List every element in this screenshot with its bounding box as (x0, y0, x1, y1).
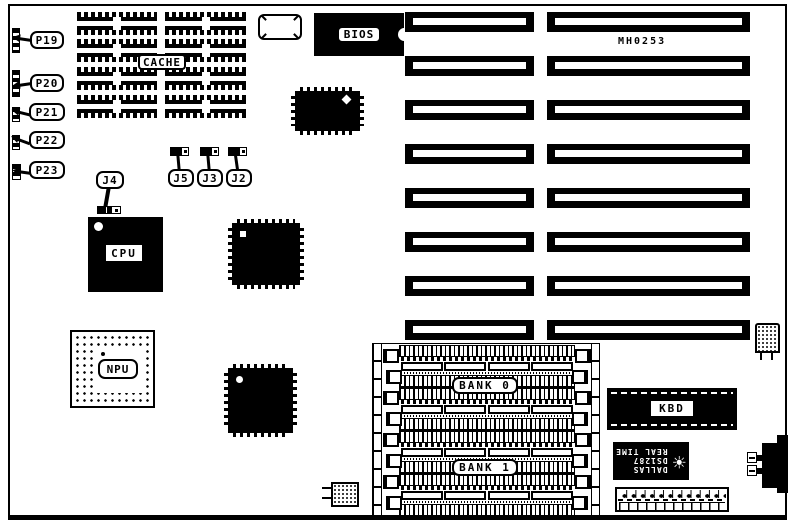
cpu-chip: CPU (88, 217, 163, 292)
header-dashes (618, 499, 726, 501)
motherboard-diagram: MH0253 P19 P20 P21 P22 P23 CACHE BIOS (0, 0, 791, 527)
rtc-print: ☀ DALLAS DS1287 REAL TIME (613, 442, 689, 480)
power-header-strip (615, 487, 729, 512)
cache-label: CACHE (138, 54, 186, 70)
connector-label-p19: P19 (30, 31, 64, 49)
connector-label-p20: P20 (30, 74, 64, 92)
jumper-j5-icon (170, 147, 189, 156)
cache-chip (165, 95, 246, 118)
pin1-mark-icon (236, 376, 243, 383)
isa-slot-segment (405, 144, 534, 164)
connector-label-p21: P21 (29, 103, 65, 121)
rtc-chip: ☀ DALLAS DS1287 REAL TIME (613, 442, 689, 480)
bios-label: BIOS (338, 27, 380, 42)
bank1-label: BANK 1 (452, 459, 518, 476)
model-code-label: MH0253 (618, 36, 666, 47)
crystal-leg (322, 487, 331, 489)
cache-chip (165, 12, 246, 35)
isa-slot-segment (405, 276, 534, 296)
rtc-brand: DALLAS (633, 466, 668, 475)
qfp-chip (295, 91, 360, 131)
isa-slot-segment (547, 100, 750, 120)
npu-label: NPU (98, 359, 138, 379)
npu-socket: NPU (70, 330, 155, 408)
isa-slot-segment (547, 188, 750, 208)
jumper-j2-icon (228, 147, 247, 156)
header-sockets (619, 502, 725, 512)
crystal-leg (760, 352, 762, 360)
qfp-chip (232, 223, 300, 285)
crystal-icon (331, 482, 359, 507)
jumper-j3-icon (200, 147, 219, 156)
cache-chip (165, 67, 246, 90)
isa-slot-segment (405, 320, 534, 340)
leader-dot-npu (101, 352, 105, 356)
mini-connector (747, 465, 757, 476)
jumper-label-j4: J4 (96, 171, 124, 189)
isa-slot-segment (405, 100, 534, 120)
connector-label-p23: P23 (29, 161, 65, 179)
isa-slot-segment (547, 56, 750, 76)
isa-slot-segment (547, 320, 750, 340)
isa-slot-segment (405, 12, 534, 32)
mini-connector (747, 452, 757, 463)
bank0-label: BANK 0 (452, 377, 518, 394)
crystal-icon (755, 323, 780, 353)
sun-logo-icon: ☀ (672, 453, 687, 470)
isa-slot-segment (405, 188, 534, 208)
header-pins (618, 490, 726, 498)
keyboard-connector-tab (777, 486, 788, 493)
chip-notch (398, 28, 404, 41)
jumper-label-j2: J2 (226, 169, 252, 187)
simm-modules (399, 345, 575, 517)
isa-slot-segment (547, 232, 750, 252)
isa-slot-segment (547, 144, 750, 164)
cache-chip (77, 95, 157, 118)
simm-latches-right (575, 346, 591, 513)
bios-chip: BIOS (314, 13, 404, 56)
kbd-label: KBD (650, 400, 694, 417)
connector-pin-nub (756, 455, 763, 461)
pin1-mark-icon (94, 222, 103, 231)
cache-chip (77, 12, 157, 35)
jumper-label-j5: J5 (168, 169, 194, 187)
isa-slot-segment (547, 276, 750, 296)
simm-bank-area (372, 343, 600, 516)
connector-label-p22: P22 (29, 131, 65, 149)
cache-chip (77, 67, 157, 90)
isa-slot-segment (547, 12, 750, 32)
isa-slot-segment (405, 56, 534, 76)
crystal-leg (771, 352, 773, 360)
jumper-label-j3: J3 (197, 169, 223, 187)
qfp-chip (228, 368, 293, 433)
simm-latches-left (383, 346, 399, 513)
isa-slot-segment (405, 232, 534, 252)
pin1-mark-icon (240, 231, 246, 237)
jumper-j4-icon (97, 206, 121, 214)
simm-rail (373, 344, 382, 515)
rtc-part: DS1287 (633, 457, 668, 466)
simm-rail (591, 344, 600, 515)
pin1-mark-icon (342, 95, 352, 105)
connector-pin-nub (756, 468, 763, 474)
oscillator-socket (258, 14, 302, 40)
crystal-leg (322, 497, 331, 499)
keyboard-connector (762, 443, 788, 488)
rtc-type: REAL TIME (615, 448, 667, 457)
cpu-label: CPU (105, 244, 143, 262)
kbd-chip: KBD (607, 388, 737, 430)
